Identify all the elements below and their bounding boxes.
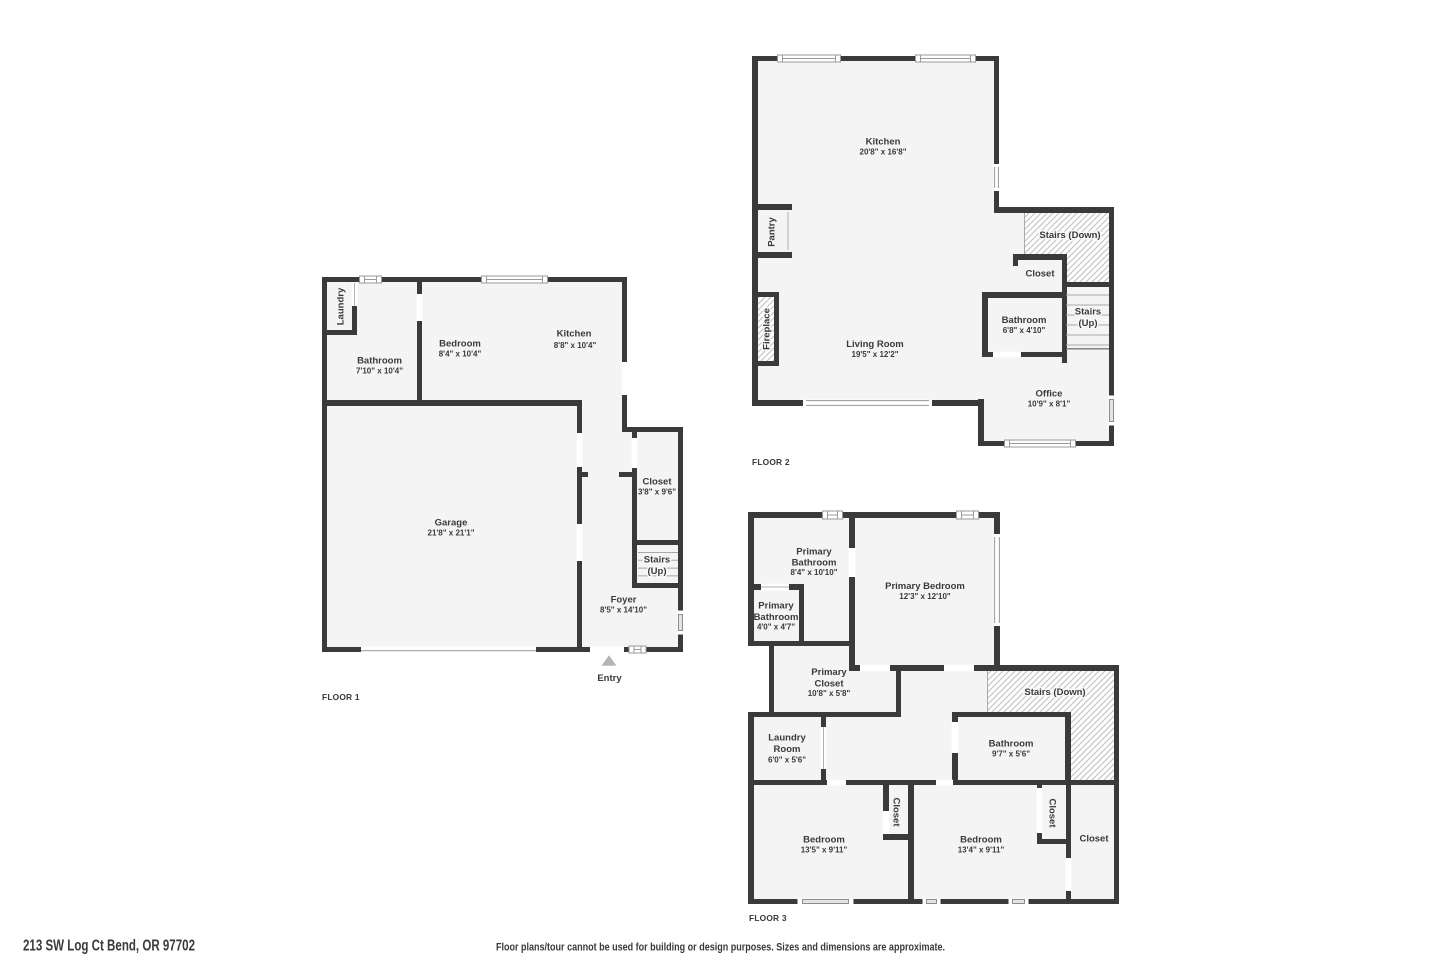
svg-text:Kitchen: Kitchen [557, 328, 592, 339]
svg-text:Stairs: Stairs [1075, 306, 1101, 317]
svg-text:8'4" x 10'4": 8'4" x 10'4" [439, 349, 482, 358]
svg-text:21'8" x 21'1": 21'8" x 21'1" [428, 528, 475, 537]
svg-text:Foyer: Foyer [611, 594, 637, 605]
svg-text:Closet: Closet [891, 797, 902, 827]
svg-text:6'8" x 4'10": 6'8" x 4'10" [1003, 326, 1046, 335]
svg-text:Bathroom: Bathroom [754, 612, 799, 623]
svg-text:Closet: Closet [814, 678, 844, 689]
svg-text:6'0" x 5'6": 6'0" x 5'6" [768, 755, 806, 764]
svg-text:Room: Room [774, 744, 801, 755]
svg-text:Stairs (Down): Stairs (Down) [1024, 687, 1085, 698]
svg-text:Laundry: Laundry [335, 287, 346, 325]
svg-text:Floor plans/tour cannot be use: Floor plans/tour cannot be used for buil… [496, 942, 945, 954]
svg-text:10'8" x 5'8": 10'8" x 5'8" [808, 689, 851, 698]
svg-text:FLOOR 3: FLOOR 3 [749, 913, 787, 923]
svg-text:8'4" x 10'10": 8'4" x 10'10" [791, 568, 838, 577]
svg-text:213 SW Log Ct Bend, OR 97702: 213 SW Log Ct Bend, OR 97702 [23, 938, 195, 955]
svg-text:19'5" x 12'2": 19'5" x 12'2" [852, 350, 899, 359]
svg-text:10'9" x 8'1": 10'9" x 8'1" [1028, 399, 1071, 408]
svg-text:Stairs: Stairs [644, 554, 670, 565]
svg-text:Primary: Primary [758, 600, 794, 611]
svg-text:Bedroom: Bedroom [803, 834, 845, 845]
svg-text:Bathroom: Bathroom [357, 355, 402, 366]
svg-text:Living Room: Living Room [846, 339, 904, 350]
svg-text:7'10" x 10'4": 7'10" x 10'4" [356, 366, 403, 375]
svg-text:12'3" x 12'10": 12'3" x 12'10" [899, 592, 951, 601]
svg-text:Stairs (Down): Stairs (Down) [1039, 230, 1100, 241]
svg-text:Kitchen: Kitchen [866, 136, 901, 147]
svg-text:3'8" x 9'6": 3'8" x 9'6" [638, 487, 676, 496]
svg-text:Bedroom: Bedroom [960, 834, 1002, 845]
svg-text:9'7" x 5'6": 9'7" x 5'6" [992, 749, 1030, 758]
svg-text:Laundry: Laundry [768, 732, 806, 743]
svg-text:(Up): (Up) [648, 566, 667, 577]
svg-text:(Up): (Up) [1079, 318, 1098, 329]
svg-text:Closet: Closet [642, 476, 672, 487]
svg-text:Bedroom: Bedroom [439, 338, 481, 349]
svg-text:Entry: Entry [597, 673, 622, 684]
svg-text:13'4" x 9'11": 13'4" x 9'11" [958, 845, 1005, 854]
svg-text:Pantry: Pantry [766, 217, 777, 247]
svg-text:Closet: Closet [1025, 268, 1055, 279]
svg-text:Fireplace: Fireplace [761, 308, 772, 350]
svg-text:Bathroom: Bathroom [1002, 315, 1047, 326]
svg-text:Garage: Garage [435, 517, 468, 528]
svg-text:20'8" x 16'8": 20'8" x 16'8" [860, 147, 907, 156]
svg-text:Bathroom: Bathroom [792, 557, 837, 568]
svg-text:Primary Bedroom: Primary Bedroom [885, 581, 965, 592]
svg-text:Closet: Closet [1079, 833, 1109, 844]
svg-text:Primary: Primary [811, 667, 847, 678]
svg-text:Primary: Primary [796, 546, 832, 557]
svg-text:FLOOR 2: FLOOR 2 [752, 457, 790, 467]
svg-text:Bathroom: Bathroom [989, 738, 1034, 749]
svg-text:4'0" x 4'7": 4'0" x 4'7" [757, 622, 795, 631]
svg-text:Office: Office [1036, 388, 1063, 399]
svg-text:13'5" x 9'11": 13'5" x 9'11" [801, 845, 848, 854]
svg-text:8'8" x 10'4": 8'8" x 10'4" [554, 341, 597, 350]
svg-text:FLOOR 1: FLOOR 1 [322, 692, 360, 702]
svg-text:Closet: Closet [1047, 798, 1058, 828]
svg-text:8'5" x 14'10": 8'5" x 14'10" [600, 605, 647, 614]
